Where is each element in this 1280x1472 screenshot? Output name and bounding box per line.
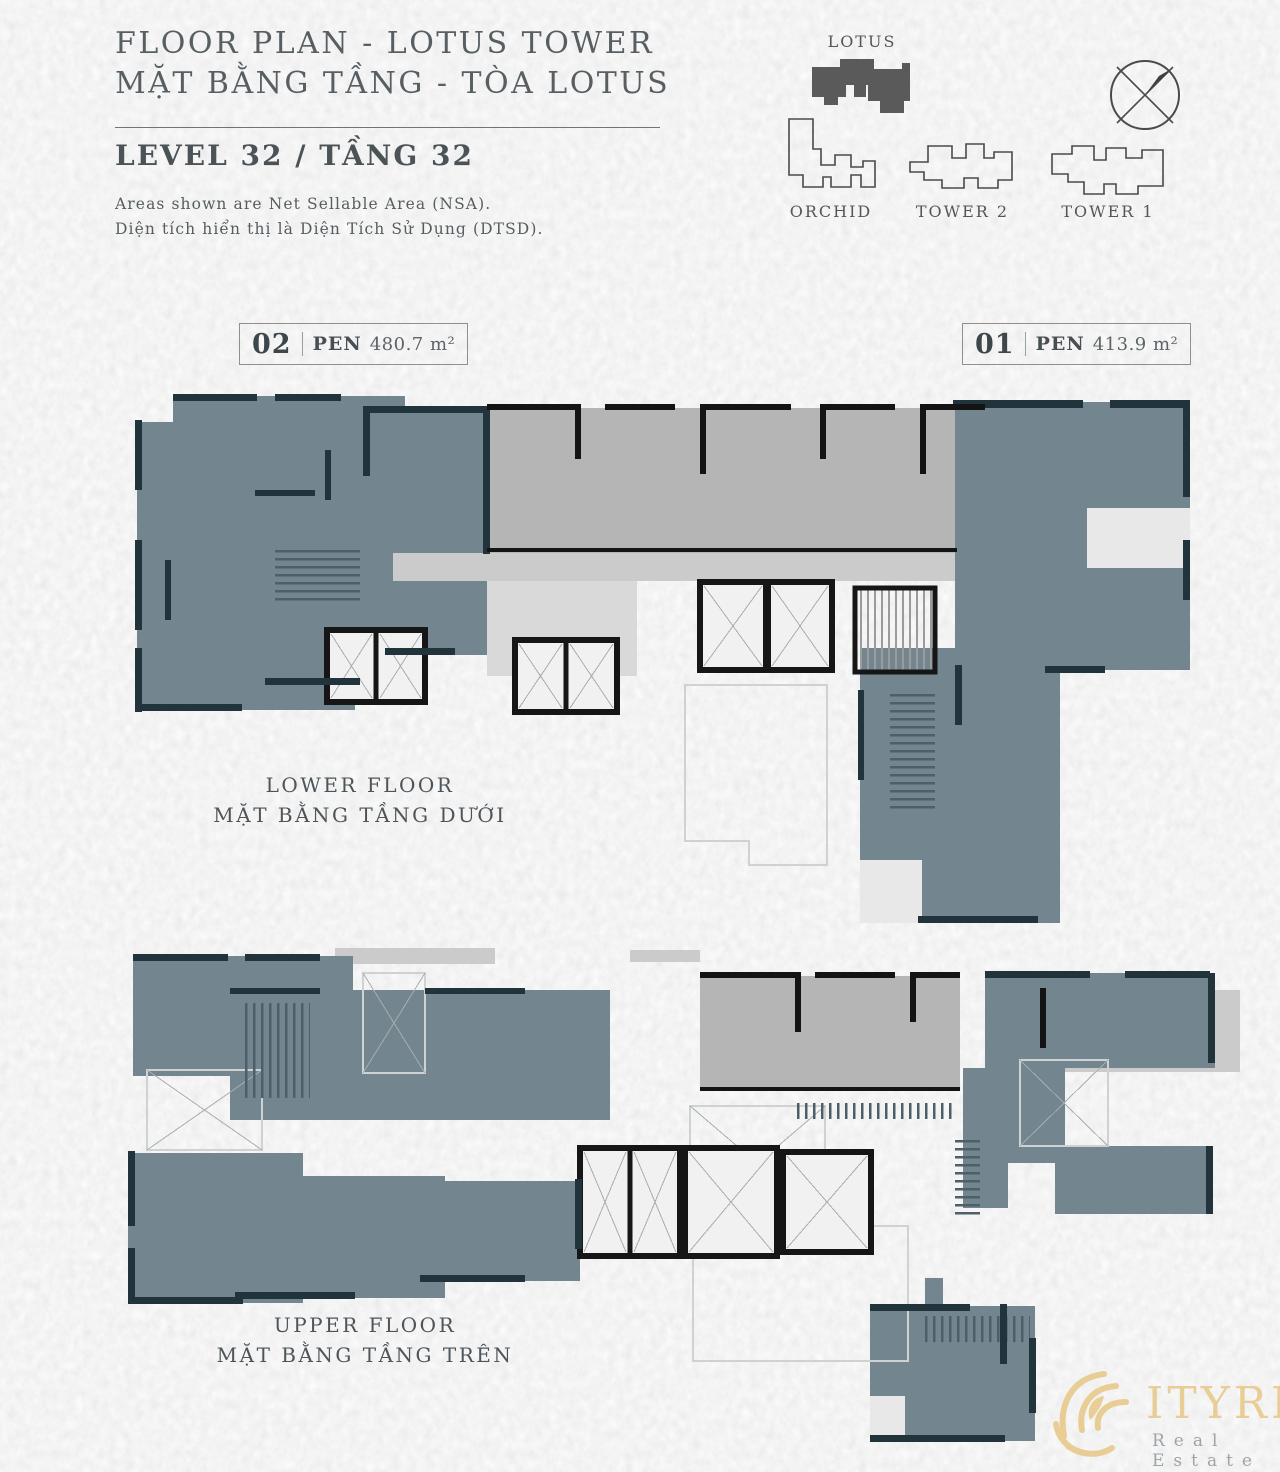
lower-floor-label: LOWER FLOOR MẶT BẰNG TẦNG DƯỚI (180, 770, 540, 830)
watermark-subtitle: Real Estate (1152, 1431, 1280, 1471)
unit-number: 01 (975, 329, 1015, 360)
tag-separator (302, 332, 303, 356)
page-title: FLOOR PLAN - LOTUS TOWER MẶT BẰNG TẦNG -… (115, 24, 670, 104)
lotus-footprint-icon (812, 55, 912, 113)
note-english: Areas shown are Net Sellable Area (NSA). (115, 192, 544, 217)
unit-tag-01: 01 PEN 413.9 m² (962, 323, 1191, 365)
key-label-tower2: TOWER 2 (905, 202, 1020, 221)
tag-separator (1025, 332, 1026, 356)
upper-floor-label: UPPER FLOOR MẶT BẰNG TẦNG TRÊN (185, 1310, 545, 1370)
page-title-line-1: FLOOR PLAN - LOTUS TOWER (115, 24, 670, 64)
unit-tag-02: 02 PEN 480.7 m² (239, 323, 468, 365)
tower2-footprint-icon (908, 140, 1016, 195)
tower1-footprint-icon (1050, 140, 1165, 195)
level-heading: LEVEL 32 / TẦNG 32 (115, 139, 474, 172)
unit-area: 480.7 m² (370, 334, 456, 355)
lower-floor-label-en: LOWER FLOOR (180, 770, 540, 800)
key-label-orchid: ORCHID (776, 202, 886, 221)
header-divider (115, 127, 660, 128)
note-vietnamese: Diện tích hiển thị là Diện Tích Sử Dụng … (115, 217, 544, 242)
unit-number: 02 (252, 329, 292, 360)
unit-type: PEN (1036, 333, 1085, 355)
floor-plan-page: FLOOR PLAN - LOTUS TOWER MẶT BẰNG TẦNG -… (0, 0, 1280, 1472)
unit-area: 413.9 m² (1093, 334, 1179, 355)
upper-floor-label-vi: MẶT BẰNG TẦNG TRÊN (185, 1340, 545, 1370)
lower-floor-plan-drawing (125, 390, 1190, 935)
page-title-line-2: MẶT BẰNG TẦNG - TÒA LOTUS (115, 64, 670, 104)
key-label-lotus: LOTUS (802, 32, 922, 51)
lower-floor-label-vi: MẶT BẰNG TẦNG DƯỚI (180, 800, 540, 830)
key-label-tower1: TOWER 1 (1048, 202, 1168, 221)
orchid-footprint-icon (786, 116, 878, 196)
watermark-brand-text: ITYRISE (1146, 1378, 1280, 1429)
cityrise-lotus-logo-icon (1042, 1362, 1147, 1467)
upper-floor-label-en: UPPER FLOOR (185, 1310, 545, 1340)
area-notes: Areas shown are Net Sellable Area (NSA).… (115, 192, 544, 242)
compass-icon (1103, 53, 1187, 137)
unit-type: PEN (313, 333, 362, 355)
